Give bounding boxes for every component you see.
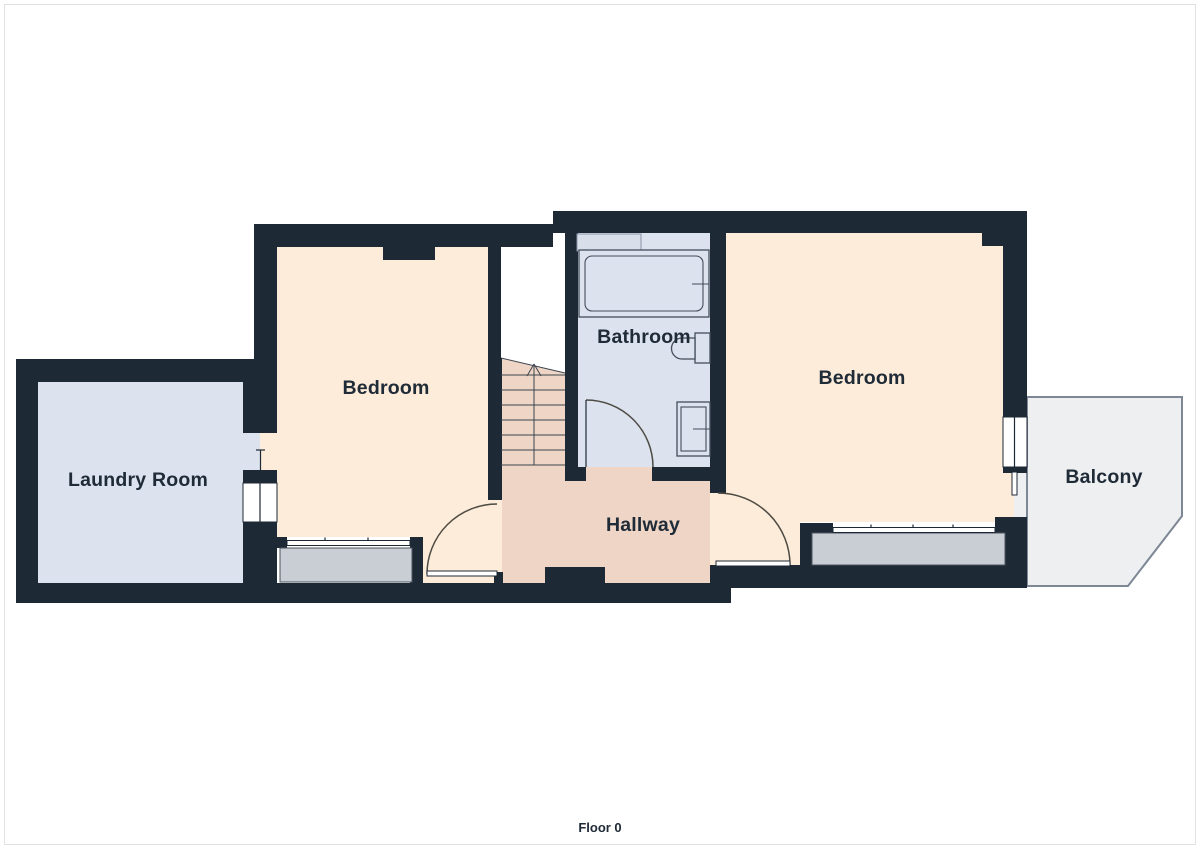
balcony-door-leaf: [1012, 472, 1017, 495]
laundry-door-threshold: [243, 433, 260, 470]
laundry-door-threshold-bedroom-side: [260, 433, 277, 470]
wall-hallway-notch: [545, 567, 605, 583]
wall-bottom-right: [710, 565, 1027, 588]
wall-stairs-bathroom: [565, 233, 578, 481]
room-label-laundry: Laundry Room: [68, 469, 208, 491]
wall-bedroom-left-hallway: [488, 247, 502, 500]
room-label-bedroom-right: Bedroom: [819, 367, 906, 389]
wall-laundry-top: [16, 359, 254, 382]
wall-top-right: [553, 211, 1027, 233]
floor-level-label: Floor 0: [578, 820, 621, 835]
floor-plan-page: Laundry Room Bedroom Bathroom Hallway Be…: [0, 0, 1200, 849]
wall-left-upper: [254, 224, 277, 359]
wall-laundry-door-frame: [243, 470, 277, 483]
bathtub-icon: [579, 250, 709, 317]
window-sill-right-bedroom: [812, 533, 1005, 565]
floor-plan-canvas: Laundry Room Bedroom Bathroom Hallway Be…: [0, 0, 1200, 849]
wall-laundry-bedroom-upper: [243, 359, 277, 433]
door-leaf-bedroom-left: [427, 571, 497, 576]
window-sill-left-bedroom: [280, 548, 412, 582]
wall-bathroom-bottom-b: [652, 467, 710, 481]
toilet-tank: [695, 333, 710, 363]
wall-notch-bedroom-right: [982, 233, 1003, 246]
window-right-bedroom: [833, 528, 995, 533]
window-left-bedroom: [287, 541, 410, 546]
room-label-hallway: Hallway: [606, 514, 680, 536]
wall-bottom-left: [16, 583, 731, 603]
wall-notch-bedroom-left: [383, 247, 435, 260]
stairs-void: [501, 233, 565, 373]
wall-right-upper: [1003, 211, 1027, 417]
bedroom-right-floor-lower: [726, 522, 800, 567]
wall-laundry-bedroom-lower: [243, 522, 277, 583]
wall-laundry-left: [16, 359, 38, 603]
wall-bathroom-bottom-a: [565, 467, 586, 481]
bedroom-right-door-threshold: [710, 493, 726, 565]
bathroom-niche: [577, 234, 641, 251]
room-label-bathroom: Bathroom: [597, 326, 691, 348]
wall-window-left-stub-a: [277, 537, 287, 548]
wall-top-left: [254, 224, 553, 247]
door-leaf-bedroom-right: [716, 561, 790, 566]
wall-bathroom-bedroom-right: [710, 233, 726, 493]
balcony-floor: [1027, 397, 1182, 586]
room-label-balcony: Balcony: [1065, 466, 1142, 488]
room-label-bedroom-left: Bedroom: [343, 377, 430, 399]
wall-window-right-stub-left: [800, 523, 812, 567]
